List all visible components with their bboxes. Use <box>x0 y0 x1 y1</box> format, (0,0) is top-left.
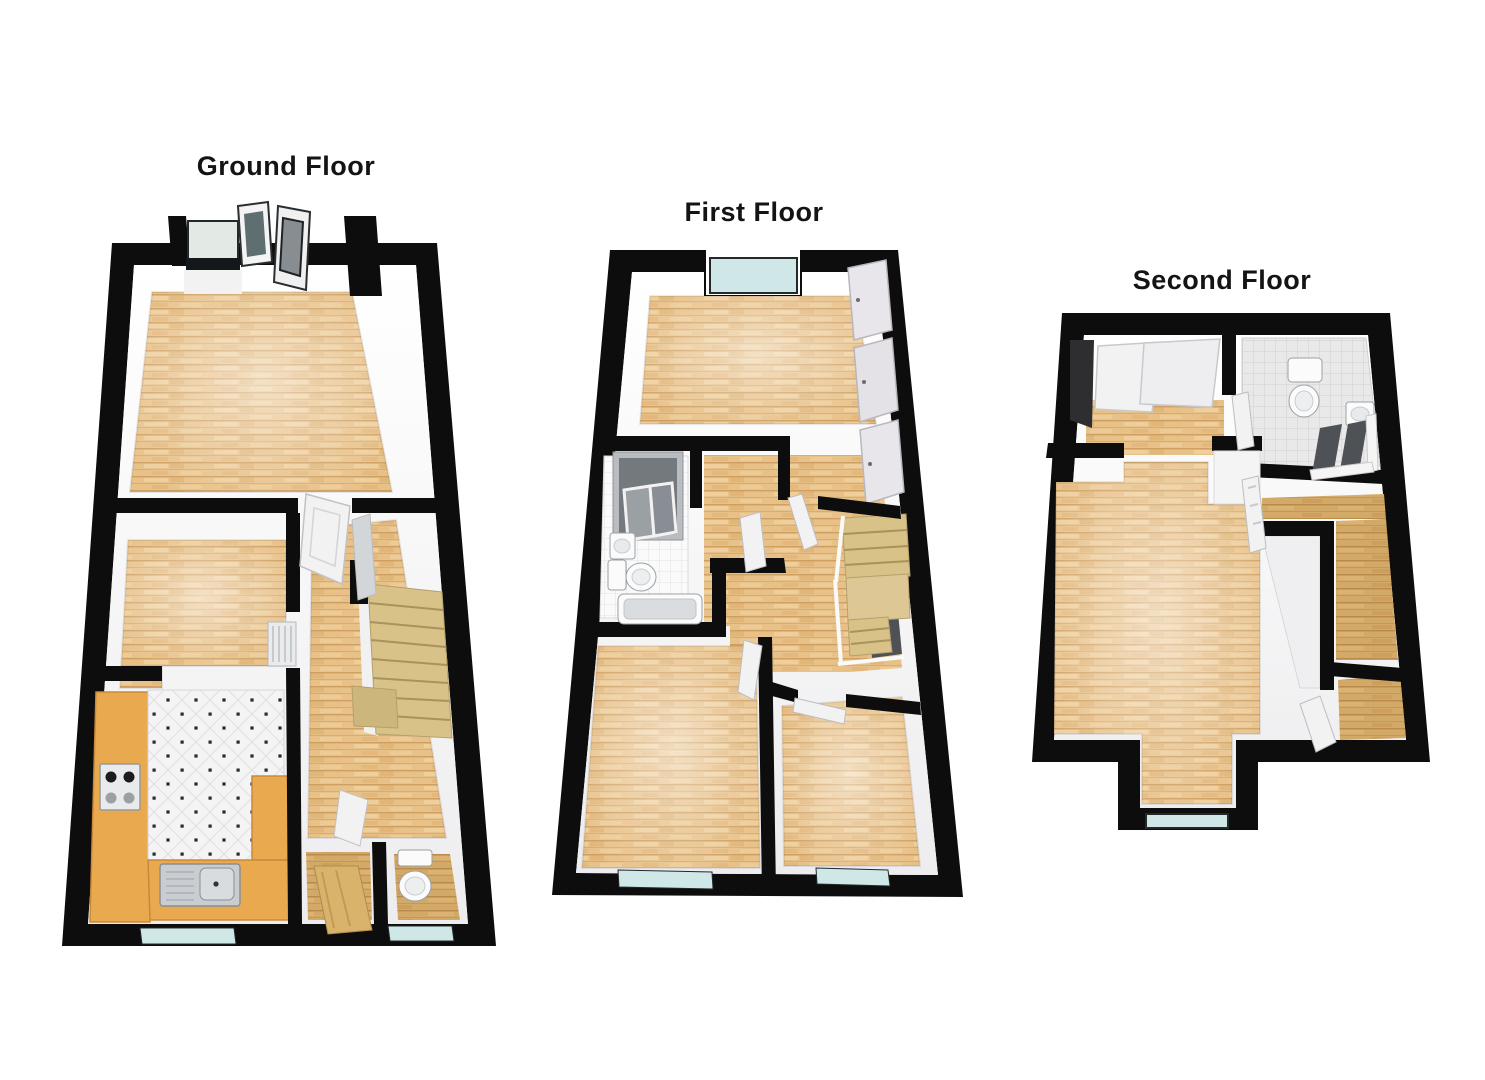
first-floor-plan <box>552 250 963 897</box>
bedroom3-window <box>816 868 890 886</box>
kitchen-sink <box>160 864 240 906</box>
gas-hob <box>100 764 140 810</box>
ff-bedroom2-floor <box>582 646 760 868</box>
entrance-door-panel-leaf <box>274 206 310 290</box>
gf-stair-winder <box>352 686 398 728</box>
ff-front-window <box>710 258 797 293</box>
gf-radiator-dining <box>268 622 296 666</box>
kitchen-window <box>140 928 236 944</box>
gf-entrance <box>168 202 382 296</box>
porch-wall-right <box>344 216 382 296</box>
entrance-sidelight-window <box>188 221 238 262</box>
ground-floor-plan <box>62 202 496 946</box>
ff-bath <box>618 594 702 624</box>
gf-dining-room-floor <box>120 540 286 688</box>
sf-dormer-window <box>1146 814 1228 828</box>
gf-kitchen <box>90 690 290 922</box>
second-floor-plan <box>1032 313 1430 830</box>
sf-closet-floor <box>1338 674 1406 740</box>
bedroom2-window <box>618 870 713 889</box>
kitchen-worktop-right <box>252 776 288 860</box>
ff-bedroom1-floor <box>640 296 876 424</box>
floorplan-canvas: Ground Floor First Floor Second Floor <box>0 0 1485 1080</box>
gf-living-room-floor <box>130 292 392 492</box>
sf-corridor-floor <box>1262 494 1386 519</box>
ff-shower-cubicle <box>613 452 683 540</box>
wc-window <box>388 926 454 941</box>
gf-toilet <box>398 850 432 901</box>
entrance-door-glazed-leaf <box>238 202 272 266</box>
ff-bedroom3-floor <box>782 697 920 866</box>
floorplan-graphic <box>0 0 1485 1080</box>
ff-wash-basin <box>610 533 635 559</box>
